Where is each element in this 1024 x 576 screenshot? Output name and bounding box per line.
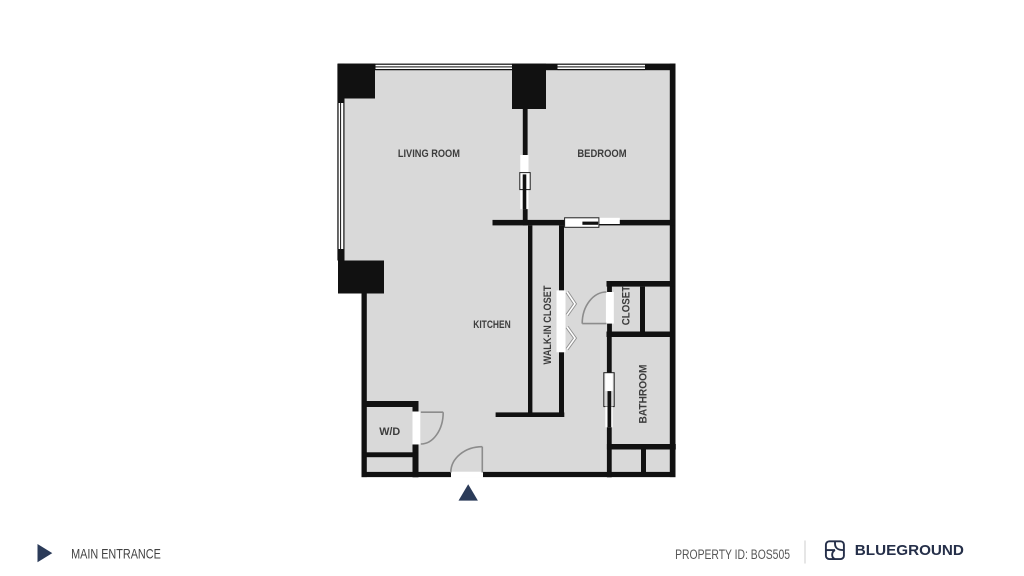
svg-text:W/D: W/D [379, 426, 400, 438]
svg-text:MAIN ENTRANCE: MAIN ENTRANCE [71, 546, 161, 561]
svg-text:BEDROOM: BEDROOM [577, 148, 626, 160]
svg-text:BLUEGROUND: BLUEGROUND [855, 543, 964, 559]
svg-text:PROPERTY ID: BOS505: PROPERTY ID: BOS505 [675, 547, 790, 563]
svg-text:LIVING ROOM: LIVING ROOM [398, 148, 460, 160]
svg-text:WALK-IN CLOSET: WALK-IN CLOSET [542, 285, 554, 364]
svg-text:BATHROOM: BATHROOM [638, 365, 650, 424]
svg-text:KITCHEN: KITCHEN [473, 319, 511, 331]
svg-text:CLOSET: CLOSET [621, 286, 633, 326]
